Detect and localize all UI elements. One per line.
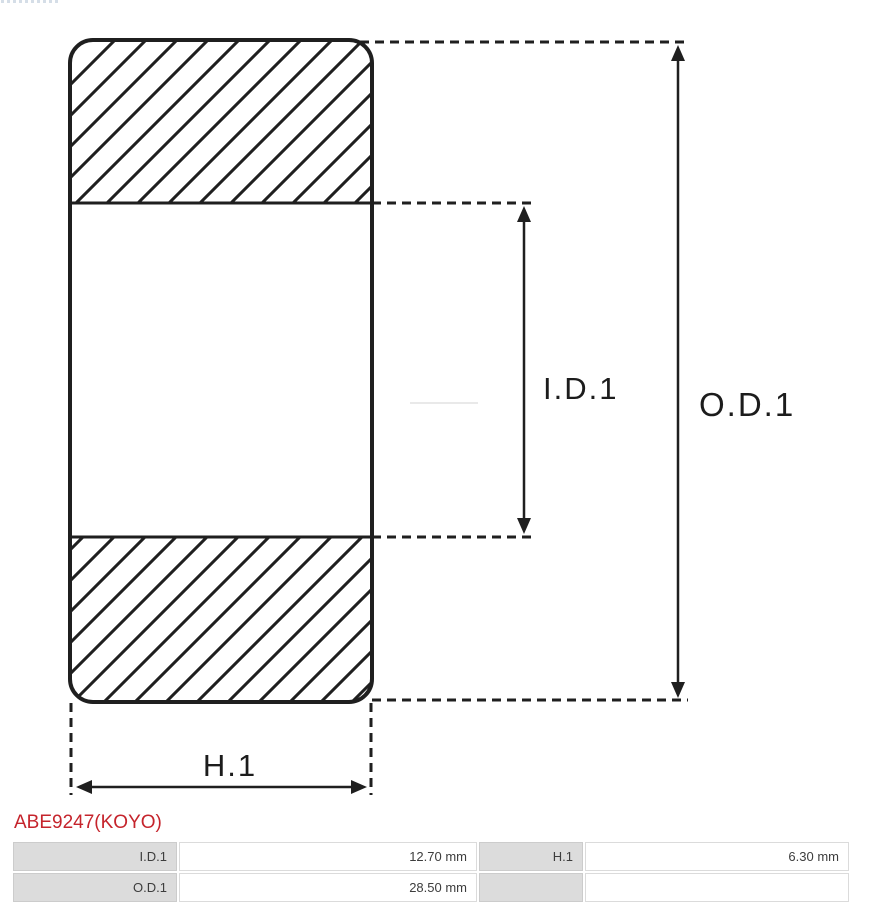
product-dimension-page: I.D.1 O.D.1 H.1 ABE9247(KOYO) I.D.1 12.7…: [0, 0, 871, 913]
arrowhead-right: [351, 780, 367, 794]
spec-value-od: 28.50 mm: [179, 873, 477, 902]
arrowhead-left: [76, 780, 92, 794]
arrowhead-down: [517, 518, 531, 534]
arrowhead-down: [671, 682, 685, 698]
spec-label-id: I.D.1: [13, 842, 177, 871]
arrowhead-up: [671, 45, 685, 61]
id-dimension-arrow: [517, 206, 531, 534]
spec-value-empty: [585, 873, 849, 902]
od-label: O.D.1: [699, 386, 795, 423]
spec-label-empty: [479, 873, 583, 902]
spec-value-h: 6.30 mm: [585, 842, 849, 871]
hatched-outer-ring-top: [70, 40, 372, 203]
od-dimension-arrow: [671, 45, 685, 698]
bearing-technical-drawing: I.D.1 O.D.1 H.1: [0, 0, 871, 806]
spec-row-2: O.D.1 28.50 mm: [13, 873, 849, 902]
spec-label-od: O.D.1: [13, 873, 177, 902]
spec-row-1: I.D.1 12.70 mm H.1 6.30 mm: [13, 842, 849, 871]
spec-value-id: 12.70 mm: [179, 842, 477, 871]
id-label: I.D.1: [543, 371, 618, 406]
part-number-link[interactable]: ABE9247(KOYO): [14, 812, 162, 834]
spec-table: I.D.1 12.70 mm H.1 6.30 mm O.D.1 28.50 m…: [11, 840, 851, 904]
arrowhead-up: [517, 206, 531, 222]
h-label: H.1: [203, 748, 257, 783]
hatched-outer-ring-bottom: [70, 537, 372, 702]
spec-label-h: H.1: [479, 842, 583, 871]
